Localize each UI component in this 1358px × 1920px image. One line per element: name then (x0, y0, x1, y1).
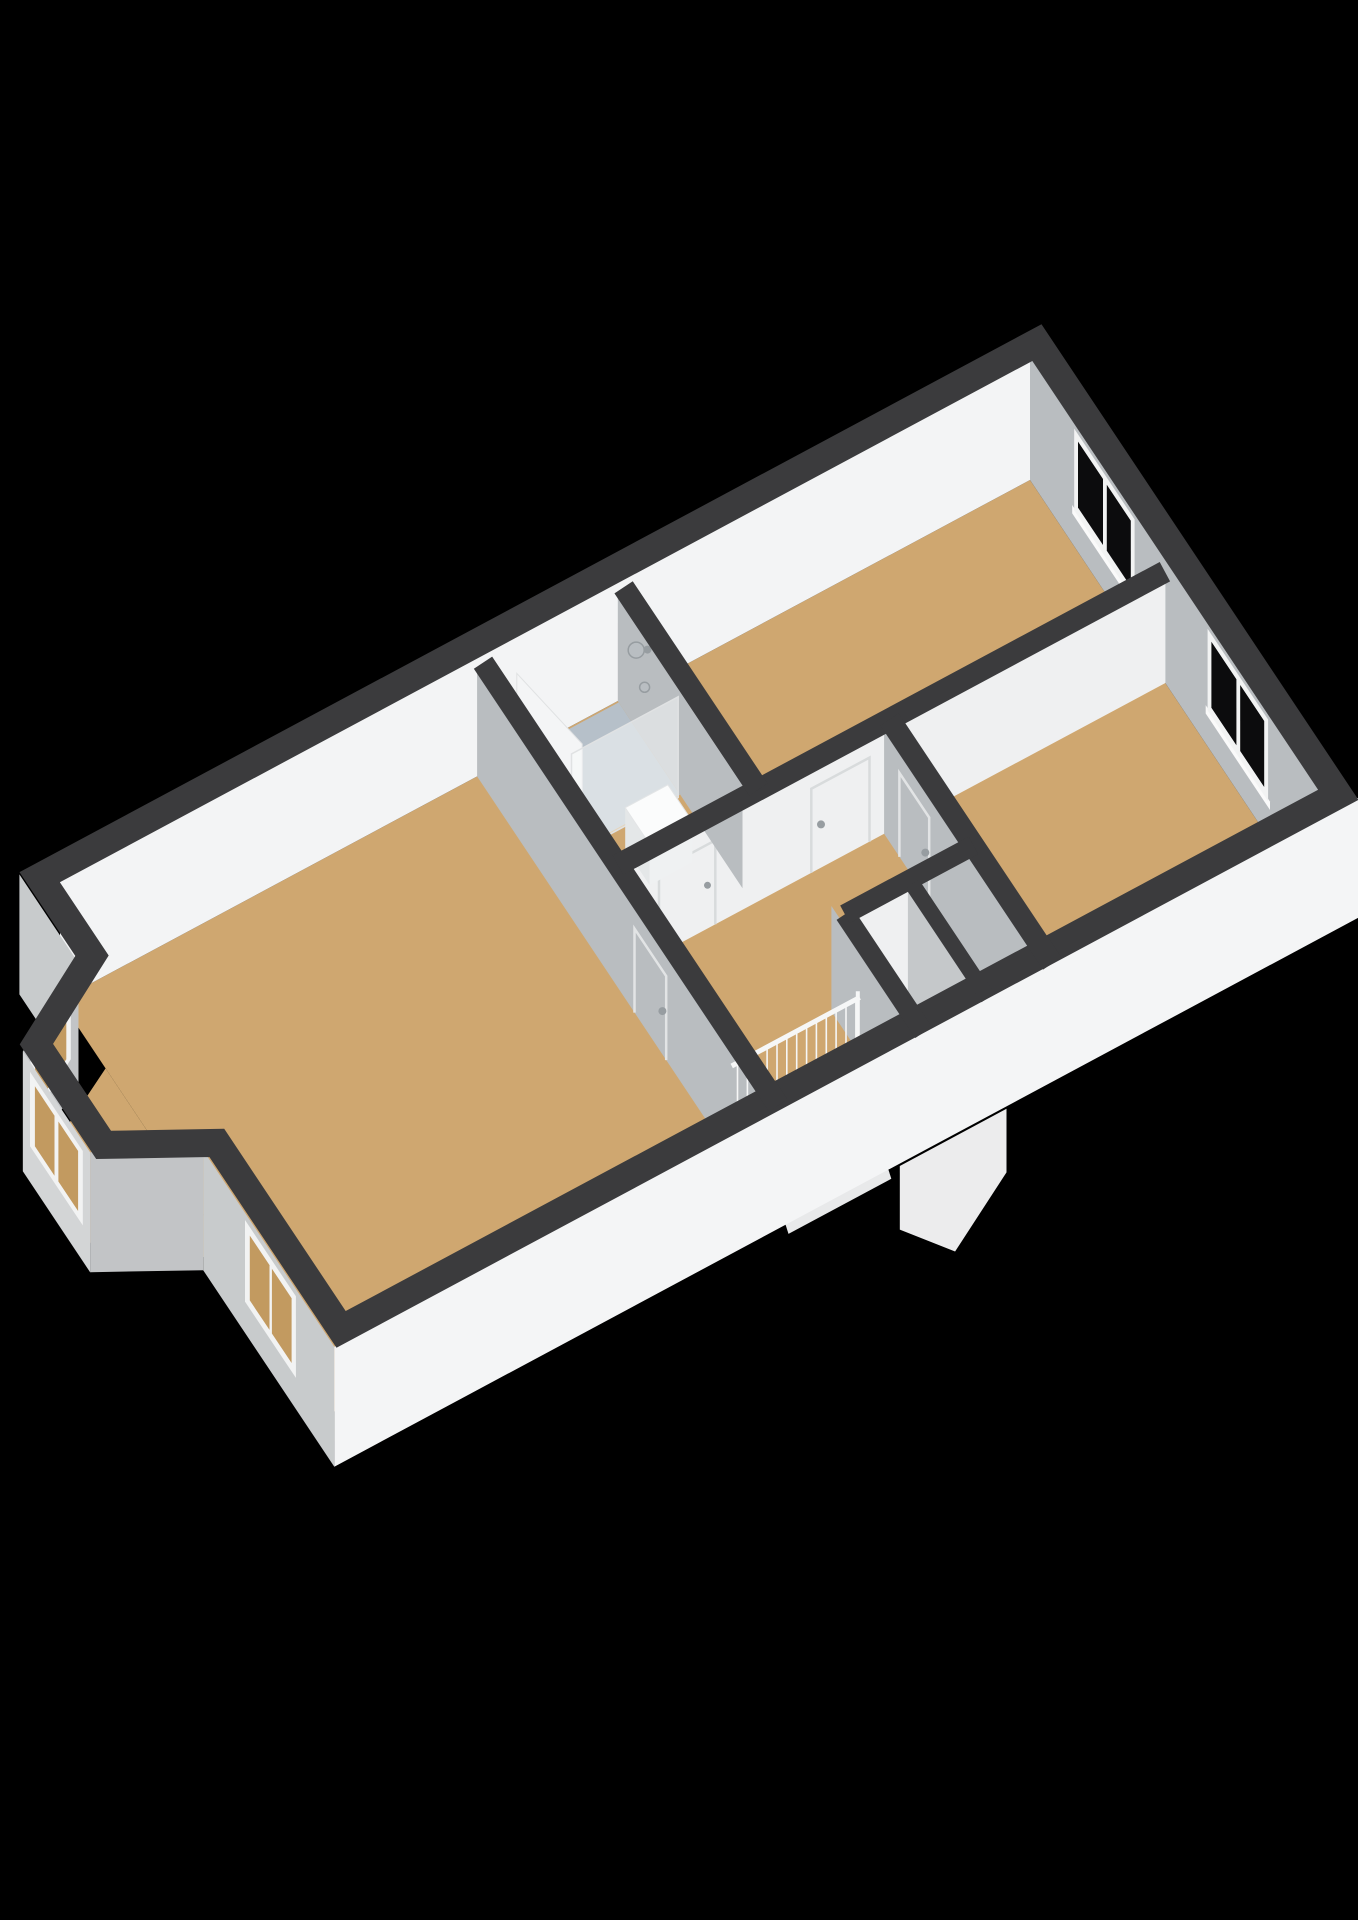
bay-window-wall-right (90, 1150, 203, 1272)
shower-head (628, 642, 644, 658)
bathroom-door-handle (704, 882, 711, 889)
floorplan-3d-view (0, 0, 1358, 1920)
big-room-door-handle (658, 1007, 666, 1015)
right-bedroom-door-handle (921, 849, 929, 857)
bedroom-door-handle (817, 820, 825, 828)
shower-mixer (640, 682, 650, 692)
floorplan-canvas (0, 0, 1358, 1920)
